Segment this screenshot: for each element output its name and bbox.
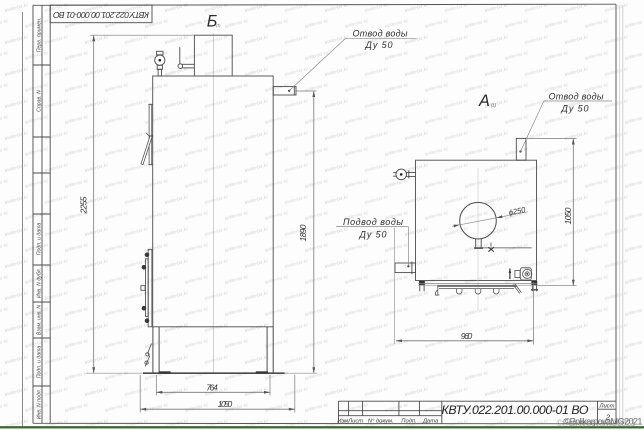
svg-text:Дата: Дата: [422, 418, 439, 424]
svg-text:Лист: Лист: [599, 404, 615, 410]
svg-text:Подвод воды: Подвод воды: [343, 217, 403, 227]
svg-text:А: А: [478, 92, 490, 110]
svg-text:Ду 50: Ду 50: [561, 103, 589, 113]
svg-text:Перв. примен.: Перв. примен.: [37, 18, 43, 52]
svg-text:2255: 2255: [79, 196, 89, 214]
svg-text:КВТУ.022.201.00.000-01 ВО: КВТУ.022.201.00.000-01 ВО: [53, 10, 149, 20]
svg-text:764: 764: [206, 382, 218, 392]
svg-text:©PolikarpovaMG2021: ©PolikarpovaMG2021: [564, 417, 643, 427]
svg-text:(1): (1): [491, 102, 497, 107]
svg-text:Подп. и дата: Подп. и дата: [37, 223, 43, 256]
svg-text:Б: Б: [207, 13, 218, 31]
svg-text:Подп. и дата: Подп. и дата: [37, 346, 43, 379]
svg-text:Отвод воды: Отвод воды: [353, 28, 408, 38]
svg-text:1050: 1050: [218, 399, 233, 409]
svg-text:Лист: Лист: [347, 418, 363, 424]
svg-text:КВТУ.022.201.00.000-01 ВО: КВТУ.022.201.00.000-01 ВО: [442, 403, 589, 417]
svg-text:Справ. N: Справ. N: [37, 90, 43, 112]
svg-text:N° докум.: N° докум.: [368, 418, 394, 424]
svg-text:Ду 50: Ду 50: [359, 229, 387, 239]
svg-text:1050: 1050: [563, 207, 573, 224]
svg-text:960: 960: [461, 331, 473, 341]
svg-text:Инв. N подл.: Инв. N подл.: [37, 389, 43, 419]
svg-text:Подп.: Подп.: [401, 418, 416, 424]
svg-text:(1): (1): [216, 24, 220, 28]
svg-text:Отвод воды: Отвод воды: [549, 91, 604, 101]
svg-text:Взам. инв. N: Взам. инв. N: [37, 305, 43, 335]
svg-text:1890: 1890: [298, 224, 308, 241]
svg-text:Ду 50: Ду 50: [365, 40, 393, 50]
svg-text:Инв. N дубл.: Инв. N дубл.: [37, 268, 43, 298]
